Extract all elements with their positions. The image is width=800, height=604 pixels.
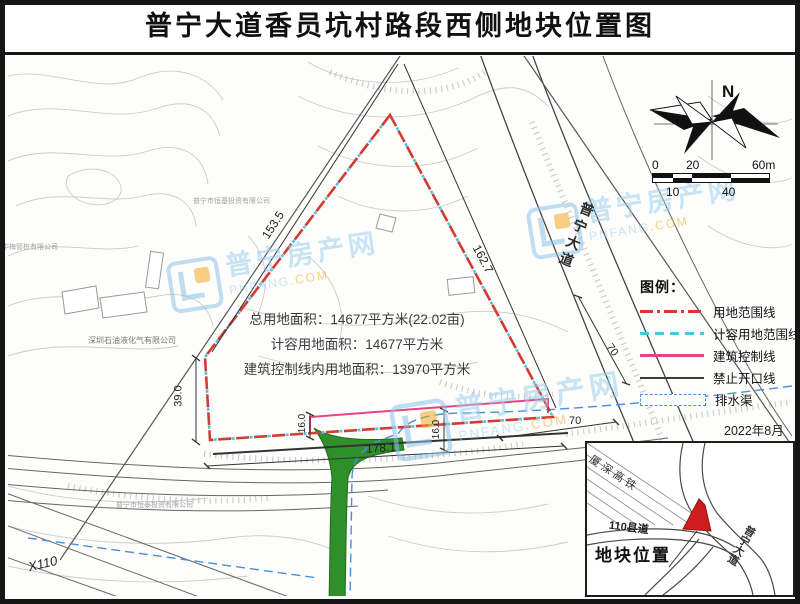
dark-line-sample xyxy=(640,377,704,379)
site-info-block: 总用地面积：14677平方米(22.02亩) 计容用地面积：14677平方米 建… xyxy=(222,308,492,383)
company-label: 中梅管桩有限公司 xyxy=(2,242,58,252)
plan-sheet: 普宁大道香员坑村路段西侧地块位置图 xyxy=(0,0,800,604)
dimension-label-178: 178.1 xyxy=(366,440,397,456)
company-label: 深圳石油液化气有限公司 xyxy=(88,335,176,346)
map-date: 2022年8月 xyxy=(724,420,784,439)
inset-title: 地块位置 xyxy=(595,541,671,566)
red-dash-line-sample xyxy=(640,310,704,313)
scale-label-20: 20 xyxy=(686,158,699,172)
scale-label-60: 60m xyxy=(752,158,775,172)
plot-boundary-red xyxy=(205,115,553,440)
drain-rect-sample xyxy=(640,394,706,406)
site-info-total-area: 总用地面积：14677平方米(22.02亩) xyxy=(222,308,492,333)
inset-leader-line xyxy=(669,531,697,567)
page-title: 普宁大道香员坑村路段西侧地块位置图 xyxy=(0,0,800,55)
compass-rose xyxy=(640,74,790,166)
legend-item: 计容用地范围线 xyxy=(640,327,798,340)
legend-item-label: 禁止开口线 xyxy=(713,368,776,387)
legend-item: 排水渠 xyxy=(640,393,798,406)
legend-item-label: 计容用地范围线 xyxy=(713,324,800,343)
legend-item-label: 用地范围线 xyxy=(713,302,776,321)
site-info-capacity-area: 计容用地面积：14677平方米 xyxy=(222,333,492,358)
inset-location-map: 厦深高铁 110县道 地块位置 普宁大道 xyxy=(585,441,795,597)
site-info-control-area: 建筑控制线内用地面积：13970平方米 xyxy=(222,358,492,383)
scale-label-40: 40 xyxy=(722,185,735,199)
plot-boundary-cyan xyxy=(205,115,553,440)
north-label: N xyxy=(722,82,734,102)
pink-line-sample xyxy=(640,354,704,357)
cyan-dash-line-sample xyxy=(640,332,704,335)
dimension-label-70a: 70 xyxy=(569,415,581,427)
legend-item: 用地范围线 xyxy=(640,305,798,318)
legend-item: 禁止开口线 xyxy=(640,371,798,384)
company-label: 普宁市恒基投资有限公司 xyxy=(193,196,270,206)
dimension-label-39: 39.0 xyxy=(173,385,185,406)
legend-heading: 图例： xyxy=(640,277,798,297)
legend-item-label: 排水渠 xyxy=(715,390,753,409)
dimension-label-16a: 16.0 xyxy=(297,414,308,433)
legend: 图例： 用地范围线 计容用地范围线 建筑控制线 禁止开口线 排水渠 xyxy=(640,277,798,415)
dimension-label-16b: 16.0 xyxy=(431,420,442,439)
legend-item-label: 建筑控制线 xyxy=(713,346,776,365)
scale-bar: 0 20 60m 10 40 xyxy=(652,158,782,200)
scale-label-0: 0 xyxy=(652,158,659,172)
scale-label-10: 10 xyxy=(666,185,679,199)
scale-bar-graphic xyxy=(652,173,770,183)
company-label: 普宁市恒泰投资有限公司 xyxy=(116,500,193,510)
legend-item: 建筑控制线 xyxy=(640,349,798,362)
